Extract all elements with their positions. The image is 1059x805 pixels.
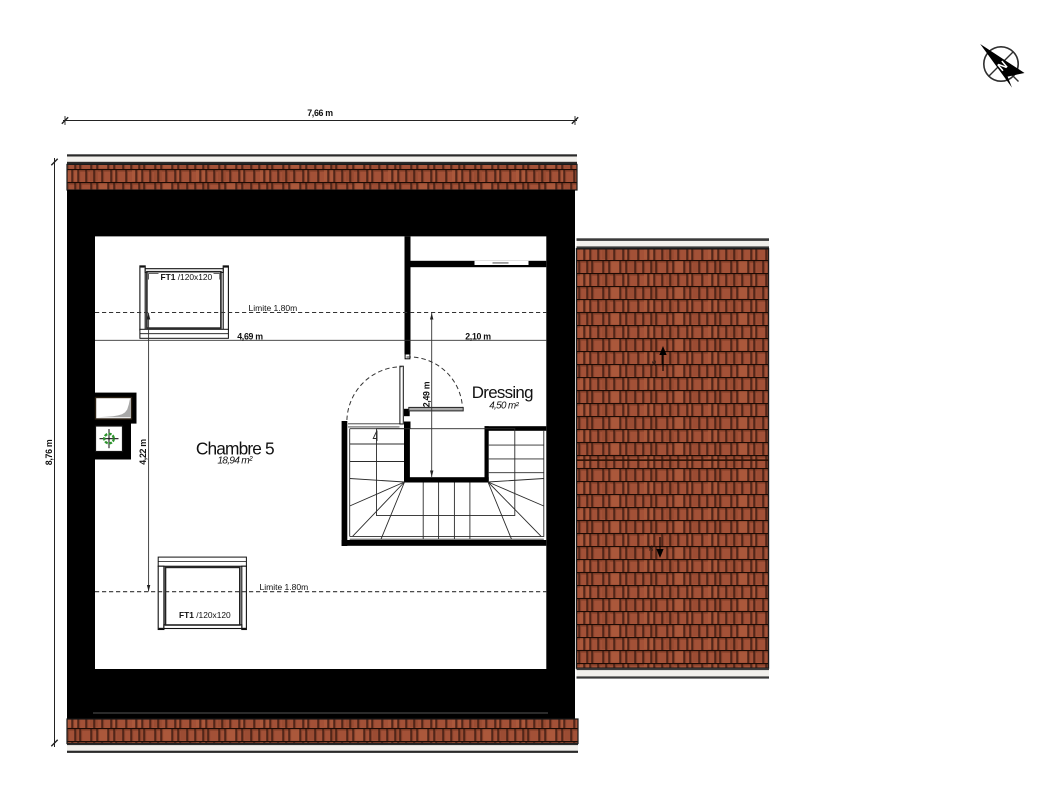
svg-text:4,50 m²: 4,50 m² [489,400,519,411]
svg-text:FT1 /120x120: FT1 /120x120 [161,272,213,282]
svg-text:35: 35 [652,360,658,366]
svg-text:2,10 m: 2,10 m [465,331,491,341]
svg-text:7,66 m: 7,66 m [307,108,333,118]
svg-text:4,69 m: 4,69 m [237,331,263,341]
svg-text:4,22 m: 4,22 m [138,439,148,465]
svg-text:FT1 /120x120: FT1 /120x120 [179,610,231,620]
svg-text:35: 35 [649,545,655,551]
svg-text:8,76 m: 8,76 m [44,439,54,465]
svg-text:18,94 m²: 18,94 m² [217,456,253,467]
svg-text:Limite 1.80m: Limite 1.80m [249,303,298,313]
svg-text:2,49 m: 2,49 m [422,381,432,407]
svg-text:Limite 1.80m: Limite 1.80m [260,582,309,592]
